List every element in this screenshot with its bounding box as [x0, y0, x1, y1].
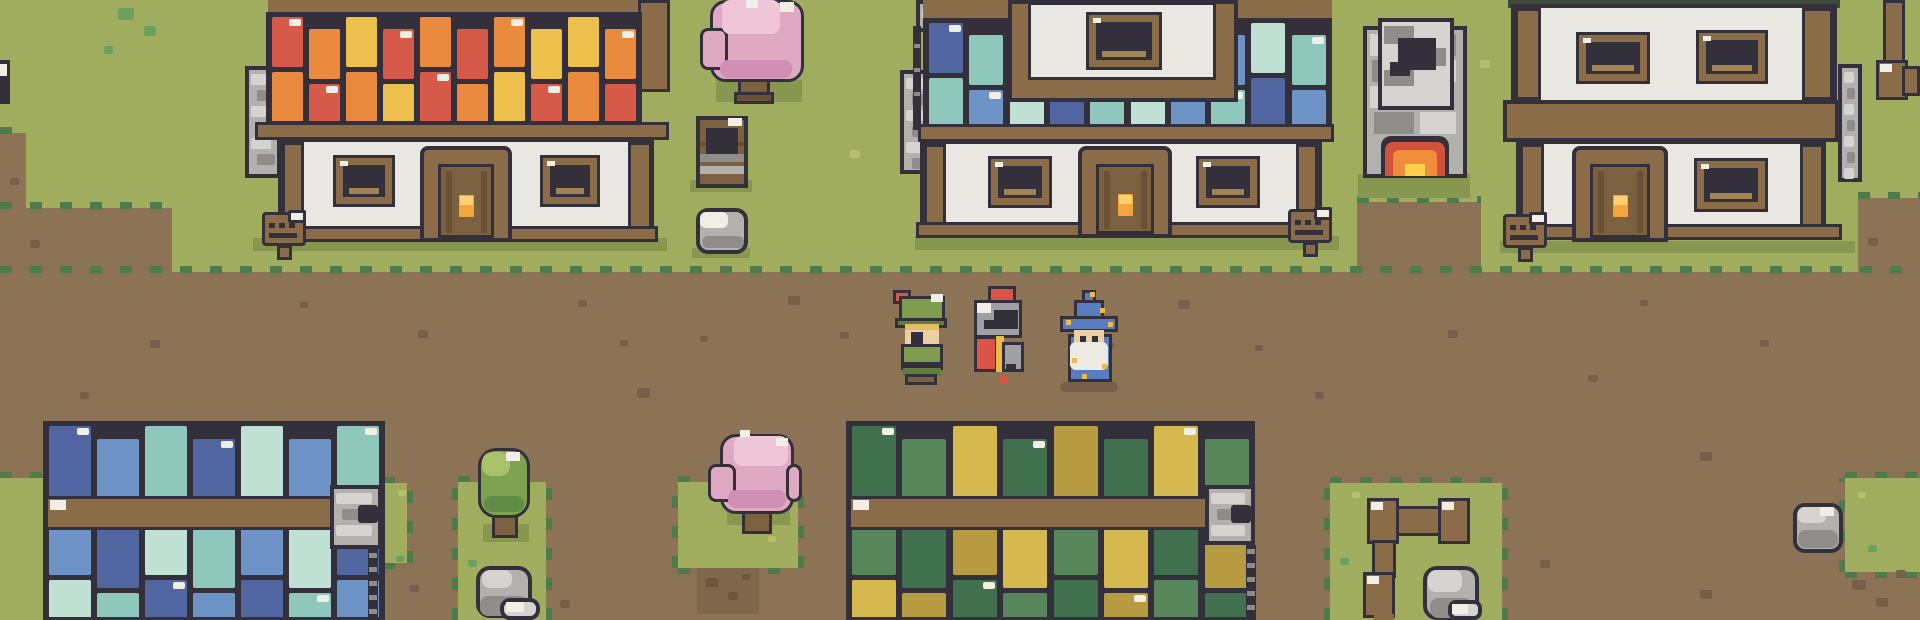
blue-house-roof-shingle-highlight — [1312, 37, 1324, 44]
pink-tree-top — [720, 60, 792, 78]
tall-house-door-panel — [1598, 171, 1604, 233]
pink-tree-top — [746, 0, 758, 8]
character-wizard-part — [1102, 364, 1107, 369]
red-house-roof-shingle — [531, 29, 562, 79]
tall-house-window-low-glint — [1701, 164, 1709, 169]
bottom-blue-roof-shingle — [145, 426, 187, 498]
tall-house-lower-wall — [1516, 140, 1826, 234]
grass-light-specks — [850, 150, 860, 158]
blue-house-signpost[interactable] — [1288, 207, 1336, 257]
tall-house-chimney-block — [1844, 136, 1854, 147]
red-house-door-lit-window — [459, 195, 474, 217]
red-house-roof-shingle — [457, 29, 488, 79]
bottom-blue-roof-shingle — [49, 580, 91, 620]
grass-island-rim — [383, 563, 407, 569]
tall-house-window-up-left-glint — [1583, 38, 1591, 43]
bottom-blue-roof-shingle — [193, 593, 235, 620]
blue-house-door-panel — [1104, 171, 1110, 229]
red-house-roof-shingle — [309, 84, 340, 124]
dirt-specks — [30, 240, 40, 248]
red-house-roof-shingle-highlight — [548, 86, 560, 93]
fence-top-right — [1880, 64, 1892, 72]
bottom-green-ladder-rung — [1247, 577, 1255, 582]
blue-house-door-lit-top — [1119, 195, 1132, 204]
barrel-crate — [728, 118, 742, 126]
grass-dark-tufts — [104, 46, 113, 54]
grass-island-rim — [1330, 477, 1502, 483]
tall-house-chimney-block — [1847, 152, 1855, 163]
blue-house-roof-shingle-highlight — [989, 92, 1001, 99]
bottom-green-ladder-rung — [1247, 563, 1255, 568]
dirt-specks — [1255, 345, 1263, 351]
pink-tree-bottom — [776, 438, 788, 446]
red-house-roof-shingle — [494, 17, 525, 67]
blue-house-roof-shingle — [969, 35, 1003, 85]
blue-house-ladder-strip — [914, 92, 920, 96]
tall-house-door-panel — [1637, 171, 1643, 233]
right-road-boulder — [1798, 530, 1838, 548]
character-knight-part — [1006, 364, 1016, 372]
bottom-green-roof-shingle — [852, 580, 896, 620]
bottom-blue-roof-shingle — [97, 593, 139, 620]
tall-house-signpost-leg — [1518, 247, 1533, 262]
bottom-blue-chimney — [330, 485, 382, 549]
red-house-roof-shingle-highlight — [622, 31, 634, 38]
bottom-green-chimney — [1205, 485, 1255, 545]
tall-house-window-up-left — [1576, 32, 1650, 84]
dirt-specks — [1876, 598, 1888, 607]
dirt-specks — [788, 296, 800, 305]
red-house-roof-shingle — [568, 17, 599, 67]
tall-house-window-low — [1694, 158, 1768, 212]
red-house-signpost-dash — [269, 233, 297, 238]
bottom-green-chimney-block — [1211, 525, 1245, 536]
dirt-specks — [1448, 330, 1458, 338]
character-wizard-part — [1072, 358, 1077, 363]
bottom-blue-roof-shingle — [241, 426, 283, 498]
red-house-window-left-sill — [349, 188, 379, 194]
red-house-roof-shingle — [272, 72, 303, 122]
bottom-green-roof-shingle — [852, 426, 896, 498]
offscreen-sign — [0, 64, 7, 76]
blue-house-door[interactable] — [1078, 146, 1172, 238]
bottom-green-roof-shingle — [1205, 593, 1249, 620]
red-house-roof-shingle — [346, 72, 377, 122]
red-house-roof-shingle — [309, 29, 340, 79]
dirt-specks — [1896, 570, 1906, 578]
dark-patch-specks — [742, 574, 750, 580]
tall-house-door-lit-top — [1614, 196, 1627, 205]
bottom-blue-ladder-rung — [369, 595, 377, 600]
bottom-green-roof-shingle — [1154, 580, 1198, 620]
red-house-door-panel — [446, 171, 452, 233]
bottom-green-ridge — [848, 496, 1212, 530]
tall-house-chimney-block — [1844, 104, 1854, 115]
blue-house-door-lit-window — [1118, 194, 1133, 216]
blue-house-ladder-strip — [914, 44, 920, 48]
stone-furnace — [1405, 164, 1425, 176]
grass-light-specks — [1858, 492, 1866, 498]
bottom-green-roof-shingle-highlight — [983, 582, 995, 589]
green-island-rocks — [482, 570, 512, 588]
blue-house-dormer-window — [1086, 12, 1162, 70]
tall-house-chimney — [1838, 64, 1862, 182]
tall-house-window-up-left-sill — [1592, 65, 1634, 71]
tall-house-door[interactable] — [1572, 146, 1668, 242]
bottom-blue-roof-shingle-highlight — [317, 595, 329, 602]
red-house-window-left-glint — [340, 161, 348, 166]
character-archer-part — [931, 294, 943, 302]
blue-house-roof-shingle — [1292, 90, 1326, 128]
grass-dark-tufts — [468, 560, 477, 567]
fence-island-boulder — [1452, 604, 1468, 614]
blue-house-signpost-dot — [1315, 220, 1321, 225]
grass-light-specks — [398, 490, 406, 496]
character-wizard-part — [1066, 320, 1071, 325]
character-wizard-part — [1082, 374, 1087, 379]
red-house-window-right-sill — [556, 188, 584, 194]
tall-house-upper-wall — [1515, 8, 1541, 100]
grass-island-rim — [0, 472, 46, 478]
pink-tree-bottom — [728, 490, 786, 508]
blue-house-roof-shingle — [929, 78, 963, 128]
dirt-specks — [1868, 238, 1878, 246]
tall-house-upper-wall — [1511, 4, 1837, 104]
tall-house-lower-wall — [1512, 224, 1842, 240]
bottom-green-ladder-rung — [1247, 605, 1255, 610]
blue-house-roof-shingle — [969, 90, 1003, 128]
blue-house-signpost-leg — [1303, 242, 1318, 257]
red-house-roof-shingle — [383, 84, 414, 124]
dirt-specks — [1700, 590, 1712, 599]
pink-tree-top — [734, 92, 774, 104]
dirt-road — [0, 208, 172, 274]
dirt-road — [1858, 198, 1920, 274]
red-house-roof-shingle — [272, 17, 303, 67]
tall-house-signpost-dot — [1510, 225, 1516, 230]
red-house-window-right-glint — [547, 161, 555, 166]
dirt-specks — [637, 388, 650, 398]
blue-house-dormer-window-sill — [1102, 51, 1146, 57]
red-house-roof-shingle — [605, 29, 636, 79]
green-tree — [484, 496, 524, 512]
bottom-green-roof-shingle — [902, 593, 946, 620]
red-house-signpost-dot — [279, 223, 285, 228]
tall-house-chimney-block — [1847, 120, 1855, 131]
grass-dark-tufts — [144, 26, 156, 36]
barrel-crate — [700, 154, 744, 162]
grass-island-rim — [546, 482, 552, 620]
bottom-blue-ladder-rung — [369, 581, 377, 586]
bottom-blue-ladder-rung — [369, 553, 377, 558]
grass-island-rim — [1324, 483, 1330, 620]
red-house-roof-shingle — [494, 72, 525, 122]
grass-island-rim — [1845, 572, 1920, 578]
bottom-blue-ladder-rung — [369, 609, 377, 614]
right-road-boulder — [1820, 507, 1834, 516]
blue-house-window-left-sill — [1004, 189, 1036, 195]
grass-island-rim — [452, 482, 458, 620]
dark-patch-specks — [728, 592, 738, 600]
bottom-green-roof-shingle-highlight — [1134, 595, 1146, 602]
dirt-specks — [410, 585, 419, 592]
blue-house-door-leaf[interactable] — [1096, 164, 1154, 234]
dirt-specks — [560, 600, 570, 608]
dirt-specks — [1760, 340, 1769, 347]
grass-light-specks — [768, 536, 776, 542]
tall-house-door-lit-window — [1613, 195, 1628, 217]
bottom-green-ladder-rung — [1247, 591, 1255, 596]
bottom-blue-roof-shingle-highlight — [173, 582, 185, 589]
red-house-roof-shingle — [531, 84, 562, 124]
tall-house-door-leaf[interactable] — [1590, 164, 1650, 238]
bottom-blue-roof-shingle — [289, 593, 331, 620]
red-house-roof-shingle-highlight — [289, 19, 301, 26]
bottom-green-roof-shingle — [1154, 426, 1198, 498]
grass-island — [1845, 478, 1920, 572]
pink-tree-top — [780, 2, 794, 12]
bottom-green-roof-shingle-highlight — [882, 428, 894, 435]
bottom-blue-roof-shingle — [145, 580, 187, 620]
dirt-specks — [1700, 452, 1712, 461]
character-archer[interactable] — [893, 288, 953, 385]
grass-island — [0, 478, 46, 620]
blue-house-ladder-strip — [913, 26, 921, 130]
dirt-specks — [1588, 375, 1598, 382]
blue-house-signpost-dash — [1295, 230, 1323, 235]
bottom-blue-chimney-block — [336, 525, 372, 536]
character-wizard-part — [1090, 292, 1095, 297]
bottom-green-chimney-block — [1211, 493, 1245, 504]
tall-house-signpost-dot — [1520, 225, 1526, 230]
bottom-green-roof-shingle — [953, 580, 997, 620]
grass-island-rim — [383, 477, 407, 483]
tall-house-chimney-block — [1844, 72, 1854, 83]
red-house-door-lit-top — [460, 196, 473, 205]
dirt-edge-tufts — [0, 266, 1920, 273]
blue-house-ladder-strip — [914, 68, 920, 72]
bottom-blue-chimney-mouth — [358, 505, 378, 523]
red-house-window-right — [540, 155, 600, 207]
fence-top-right — [1902, 66, 1920, 96]
red-house-roof-shingle — [346, 17, 377, 67]
tall-house-window-low-sill — [1710, 193, 1752, 199]
red-house-roof — [266, 12, 642, 124]
dirt-specks — [300, 302, 308, 308]
dirt-specks — [1540, 560, 1550, 568]
white-rock — [702, 236, 744, 248]
blue-house-window-right — [1196, 156, 1260, 208]
ground-shadows — [915, 236, 1339, 250]
character-knight-part — [1000, 376, 1008, 384]
tall-house-signpost-paper — [1529, 212, 1547, 225]
character-wizard-part — [1100, 308, 1105, 313]
blue-house-window-right-sill — [1212, 189, 1244, 195]
character-knight-part — [974, 336, 998, 372]
red-house-ridge — [638, 0, 670, 92]
blue-house-signpost-dot — [1305, 220, 1311, 225]
fence-bottom-right — [1374, 614, 1394, 620]
fence-bottom-right — [1442, 502, 1454, 510]
fence-bottom-right — [1371, 502, 1383, 510]
tall-house-chimney-block — [1847, 88, 1855, 99]
dirt-specks — [1852, 580, 1866, 590]
character-knight[interactable] — [972, 286, 1026, 388]
blue-house-roof-shingle — [1292, 35, 1326, 85]
bottom-blue-roof-shingle — [241, 580, 283, 620]
tall-house-window-up-right-glint — [1703, 36, 1711, 41]
green-island-rocks — [506, 602, 524, 612]
grass-island-rim — [1502, 483, 1508, 620]
bottom-blue-roof-shingle — [49, 426, 91, 498]
pink-tree-bottom — [786, 464, 802, 502]
blue-house-roof-shingle — [1251, 78, 1285, 128]
character-archer-part — [905, 374, 937, 385]
bottom-green-roof-shingle-highlight — [1033, 441, 1045, 448]
grass-dark-tufts — [118, 8, 134, 20]
bottom-green-roof-shingle-highlight — [1184, 428, 1196, 435]
tall-house-signpost-dot — [1530, 225, 1536, 230]
red-house-signpost-leg — [277, 245, 292, 260]
red-house-wall — [628, 142, 652, 230]
pink-tree-bottom — [740, 430, 750, 437]
stone-furnace — [1374, 112, 1414, 134]
blue-house-roof-shingle — [1251, 23, 1285, 73]
dirt-specks — [620, 340, 628, 346]
character-wizard-part — [1108, 322, 1113, 327]
bottom-green-ladder-rung — [1247, 549, 1255, 554]
dirt-specks — [150, 340, 160, 348]
grass-island-rim — [672, 482, 678, 568]
grass-island-rim — [1845, 472, 1920, 478]
red-house-roof-shingle — [568, 72, 599, 122]
bottom-green-roof-shingle — [1054, 426, 1098, 498]
green-tree — [506, 452, 520, 461]
dirt-specks — [10, 178, 19, 185]
tall-house-signpost[interactable] — [1503, 212, 1551, 262]
grass-light-specks — [1352, 492, 1360, 498]
blue-house-wall — [924, 144, 946, 228]
blue-house-window-right-glint — [1203, 162, 1211, 167]
red-house-roof-shingle-highlight — [437, 74, 449, 81]
red-house-door-leaf[interactable] — [438, 164, 494, 238]
character-knight-part — [984, 320, 1018, 329]
blue-house-window-left — [988, 156, 1052, 208]
bottom-green-roof-shingle — [1003, 593, 1047, 620]
red-house-door[interactable] — [420, 146, 512, 242]
red-house-signpost-dot — [289, 223, 295, 228]
dirt-specks — [840, 332, 849, 339]
dirt-edge-tufts — [1858, 192, 1920, 199]
white-rock — [700, 212, 728, 228]
tall-house-window-up-right — [1696, 30, 1768, 84]
dirt-specks — [80, 392, 89, 399]
dirt-specks — [1178, 300, 1190, 309]
blue-house-signpost-dot — [1295, 220, 1301, 225]
bottom-blue-ladder — [368, 549, 378, 620]
red-house-roof-shingle — [420, 17, 451, 67]
bottom-blue-chimney-block — [336, 493, 372, 504]
fence-island-boulder — [1428, 570, 1462, 592]
red-house-roof-shingle-highlight — [511, 19, 523, 26]
stone-furnace — [1390, 62, 1410, 76]
tall-house-lower-wall — [1800, 144, 1824, 230]
red-house-roof-shingle — [383, 29, 414, 79]
character-knight-part — [977, 303, 991, 313]
bottom-green-roof-shingle — [1104, 593, 1148, 620]
blue-house-roof-shingle — [929, 23, 963, 73]
red-house-roof-shingle — [420, 72, 451, 122]
red-house-window-left — [333, 155, 395, 207]
red-house-roof-shingle-highlight — [326, 86, 338, 93]
grass-dark-tufts — [396, 556, 404, 562]
tall-house-signpost-dash — [1510, 235, 1538, 240]
red-house-chimney-block — [257, 154, 275, 165]
red-house-door-panel — [481, 171, 487, 233]
bottom-green-roof-shingle — [1054, 580, 1098, 620]
bottom-green-ridge — [853, 500, 869, 510]
tall-house-midbeam — [1503, 100, 1839, 142]
bottom-blue-roof-shingle-highlight — [365, 428, 377, 435]
character-archer-part — [911, 332, 923, 344]
dirt-road — [1357, 202, 1481, 274]
character-wizard[interactable] — [1058, 290, 1120, 392]
red-house-signpost-dot — [269, 223, 275, 228]
bottom-blue-ridge — [45, 496, 335, 530]
dirt-specks — [1315, 392, 1324, 399]
red-house-roof-shingle — [605, 84, 636, 124]
dirt-edge-tufts — [0, 202, 172, 209]
red-house-roof-shingle-highlight — [400, 31, 412, 38]
dirt-specks — [700, 336, 708, 342]
blue-house-window-left-glint — [995, 162, 1003, 167]
game-scene[interactable] — [0, 0, 1920, 620]
grass-island-rim — [407, 483, 413, 563]
character-wizard-part — [1060, 382, 1118, 392]
bottom-blue-ridge — [50, 500, 66, 510]
bottom-blue-ladder-rung — [369, 567, 377, 572]
tall-house-chimney-block — [1844, 168, 1854, 179]
bottom-green-chimney-mouth — [1231, 505, 1251, 523]
grass-dark-tufts — [1340, 558, 1349, 565]
bottom-blue-roof-shingle-highlight — [221, 441, 233, 448]
blue-house-dormer-window-glint — [1093, 18, 1101, 23]
red-house-roof-shingle — [457, 84, 488, 124]
bottom-blue-roof-shingle-highlight — [77, 428, 89, 435]
barrel-crate — [700, 166, 744, 174]
tall-house-upper-wall — [1802, 8, 1833, 100]
dirt-specks — [578, 300, 587, 307]
ground-shadows — [1500, 241, 1855, 253]
blue-house-signpost-paper — [1314, 207, 1332, 220]
red-house-signpost-paper — [288, 210, 306, 223]
grass-dark-tufts — [1868, 545, 1877, 552]
blue-house-door-panel — [1141, 171, 1147, 229]
dark-patch-specks — [706, 578, 718, 587]
dirt-specks — [1640, 300, 1648, 306]
dirt-specks — [418, 330, 428, 338]
tall-house-window-up-right-sill — [1712, 65, 1752, 71]
stone-furnace — [1420, 112, 1456, 134]
bottom-green-roof-shingle — [953, 426, 997, 498]
fence-bottom-right — [1367, 576, 1379, 584]
blue-house-roof-shingle-highlight — [949, 25, 961, 32]
grass-light-specks — [1480, 60, 1490, 68]
dirt-edge-tufts — [0, 127, 26, 134]
barrel-crate — [706, 128, 738, 154]
red-house-signpost[interactable] — [262, 210, 310, 260]
bottom-green-ladder — [1246, 545, 1256, 620]
